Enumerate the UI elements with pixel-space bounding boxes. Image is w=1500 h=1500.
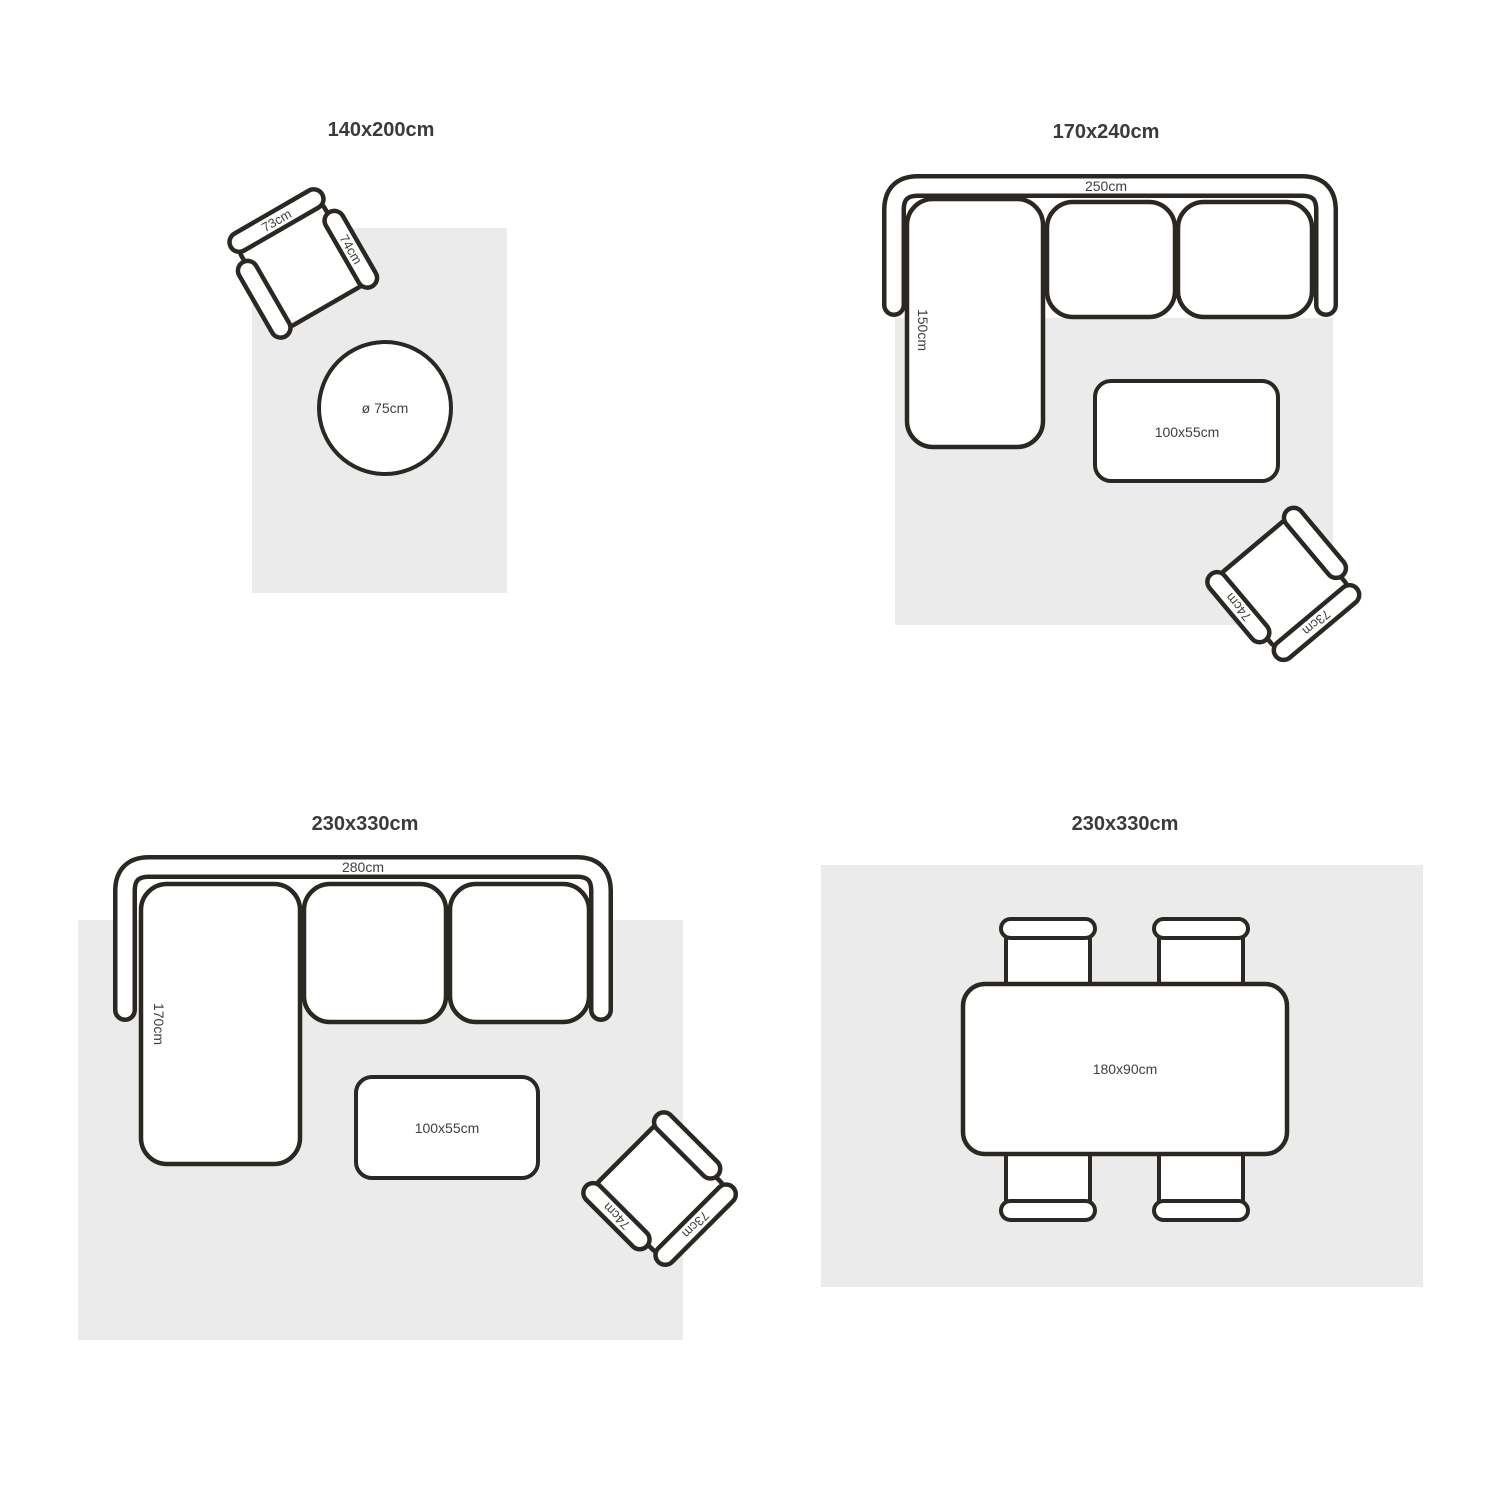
- side-table-dimension: ø 75cm: [362, 400, 409, 416]
- dining-chair-bottom-left: [1001, 1148, 1095, 1220]
- dining-table-dimension: 180x90cm: [1093, 1061, 1158, 1077]
- dining-chair-top-left: [1001, 919, 1095, 990]
- rug-size-guide: 140x200cm 170x240cm 230x330cm 230x330cm …: [0, 0, 1500, 1500]
- sofa-seat-cushion: [1178, 202, 1312, 317]
- sofa-chaise-dimension: 170cm: [151, 1003, 167, 1045]
- dining-table: 180x90cm: [963, 984, 1287, 1154]
- dining-chair-bottom-right: [1154, 1148, 1248, 1220]
- round-side-table: ø 75cm: [319, 342, 451, 474]
- sofa-chaise-dimension: 150cm: [915, 309, 931, 351]
- floorplan-scene: 73cm 74cm ø 75cm 250cm 150cm 100x55cm 73…: [0, 0, 1500, 1500]
- sofa-width-dimension: 250cm: [1085, 178, 1127, 194]
- coffee-table-top-right: 100x55cm: [1095, 381, 1278, 481]
- dining-chair-top-right: [1154, 919, 1248, 990]
- sofa-width-dimension: 280cm: [342, 859, 384, 875]
- sofa-seat-cushion: [450, 884, 589, 1022]
- sofa-seat-cushion: [1047, 202, 1175, 317]
- coffee-table-dimension: 100x55cm: [415, 1120, 480, 1136]
- sofa-seat-cushion: [304, 884, 446, 1022]
- coffee-table-bottom-left: 100x55cm: [356, 1077, 538, 1178]
- coffee-table-dimension: 100x55cm: [1155, 424, 1220, 440]
